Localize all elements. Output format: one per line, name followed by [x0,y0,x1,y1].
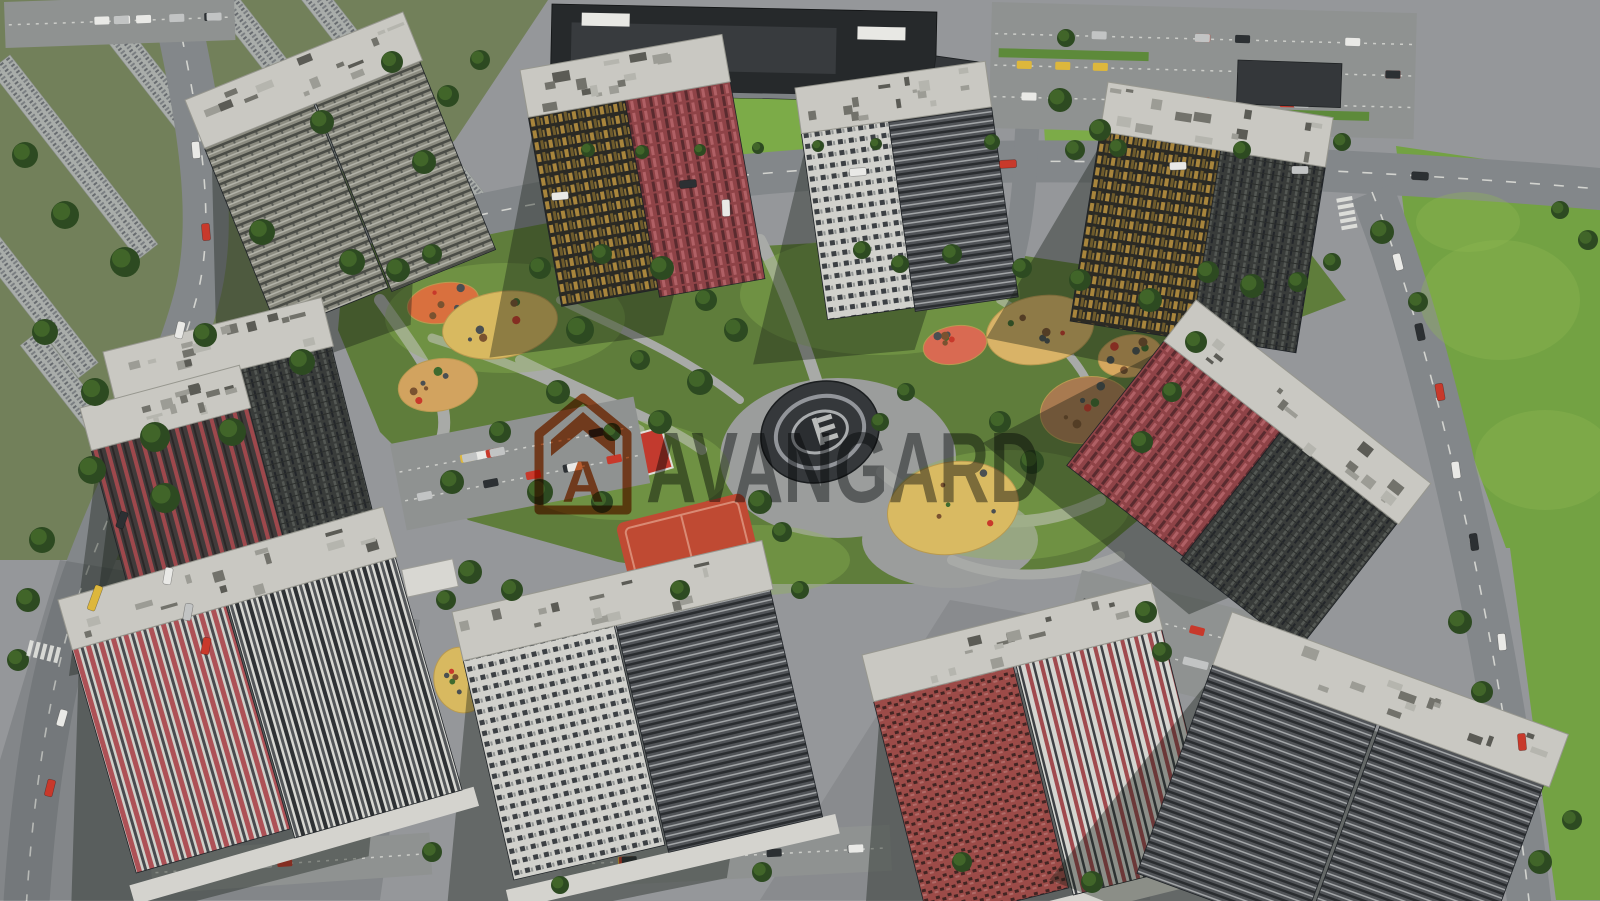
lawn-patch [1420,240,1580,360]
car [1169,162,1186,171]
roof-clutter [1151,99,1163,111]
tree-highlight [195,325,210,340]
tree-highlight [1110,140,1121,151]
tree-highlight [142,424,161,443]
tree-highlight [1552,202,1563,213]
tree-highlight [871,139,878,146]
tree-highlight [251,221,267,237]
tree-highlight [1013,259,1025,271]
tree-highlight [312,112,327,127]
tree-highlight [773,523,785,535]
car [849,167,867,176]
tree-highlight [388,260,403,275]
parked-car [136,15,151,24]
watermark-text: AVANGARD [646,412,1040,524]
tree-highlight [671,581,683,593]
car [1497,633,1507,651]
tree-highlight [442,472,457,487]
parked-car [1385,70,1400,78]
tree-highlight [14,144,30,160]
tree-highlight [582,144,591,153]
tree-highlight [1530,852,1545,867]
car [679,179,697,188]
parked-car [206,12,221,21]
tree-highlight [696,290,710,304]
tree-highlight [152,485,171,504]
car [1292,166,1309,174]
tree-highlight [382,52,396,66]
tree-highlight [1140,290,1155,305]
tree-highlight [1198,262,1212,276]
car [191,141,200,159]
tree-highlight [898,384,909,395]
tree-highlight [53,203,70,220]
tree-highlight [1153,643,1165,655]
parked-car [1093,63,1108,71]
lawn-patch [1416,192,1520,252]
tree-highlight [636,146,645,155]
tree-highlight [341,251,357,267]
tree-highlight [652,258,667,273]
roof-clutter [930,100,937,107]
tree-highlight [1050,90,1065,105]
roof-clutter [912,89,917,93]
roof-clutter [617,79,626,87]
tree-highlight [530,258,544,272]
tree-highlight [1409,293,1421,305]
tree-highlight [593,245,605,257]
roof-clutter [1231,133,1239,140]
roof-clutter [1305,122,1312,131]
tree-highlight [31,529,47,545]
tree-highlight [18,590,33,605]
tree-highlight [854,242,865,253]
tree-highlight [112,249,131,268]
tree-highlight [985,135,995,145]
tree-highlight [1334,134,1345,145]
roof-clutter [1244,109,1252,119]
tree-highlight [291,351,307,367]
parked-car [114,16,129,25]
parked-car [1195,34,1210,42]
tree-highlight [568,318,585,335]
tree-highlight [1163,383,1175,395]
tree-highlight [1186,332,1200,346]
tree-highlight [689,371,705,387]
tree-highlight [695,145,702,152]
car [999,160,1016,169]
tree-highlight [1234,142,1245,153]
service-shed [1236,60,1341,108]
tree-highlight [753,143,760,150]
tree-highlight [1289,273,1301,285]
tree-highlight [943,245,955,257]
tree-highlight [438,86,452,100]
tree-highlight [34,321,50,337]
tree-highlight [460,562,475,577]
tree-highlight [892,256,903,267]
tree-highlight [1563,811,1575,823]
parked-car [1017,61,1032,69]
car [551,191,569,200]
tree-highlight [953,853,965,865]
tree-highlight [437,591,449,603]
tree-highlight [80,458,97,475]
parked-car [1092,31,1107,39]
mall-sign [857,26,905,40]
tree-highlight [423,245,435,257]
parked-car [1021,92,1036,100]
aerial-render-stage: A AVANGARD [0,0,1600,901]
parked-car [1055,62,1070,70]
tree-highlight [792,582,803,593]
aerial-render: A AVANGARD [0,0,1600,901]
tree-highlight [1070,270,1084,284]
tree-highlight [813,141,820,148]
tree-highlight [1136,602,1150,616]
tree-highlight [726,320,741,335]
parked-car [1235,35,1250,43]
tree-highlight [1132,432,1146,446]
tree-highlight [471,51,483,63]
tree-highlight [552,877,563,888]
tree-highlight [8,650,22,664]
tree-highlight [1324,254,1335,265]
tree-highlight [1066,141,1078,153]
roof-clutter [852,97,860,108]
tree-highlight [631,351,643,363]
tree-highlight [83,380,100,397]
parking-old-town [4,0,235,48]
tree-highlight [1472,682,1486,696]
parked-car [1345,38,1360,46]
roof-clutter [576,78,588,91]
roof-clutter [808,110,817,120]
car [201,223,210,241]
tree-highlight [490,422,504,436]
parked-car [169,14,184,23]
tree-highlight [220,420,237,437]
tree-highlight [1450,612,1465,627]
tree-highlight [753,863,765,875]
tree-highlight [1579,231,1591,243]
tree-highlight [1372,222,1387,237]
parked-car [94,16,109,25]
mall-sign [582,13,630,27]
parked-car [848,844,863,853]
tree-highlight [1242,276,1257,291]
car [722,199,731,216]
car [1411,172,1428,181]
tree-highlight [502,580,516,594]
roof-clutter [843,105,853,115]
roof-clutter [918,80,930,92]
logo-letter: A [562,450,604,515]
tree-highlight [423,843,435,855]
tree-highlight [1058,30,1069,41]
tree-highlight [1082,872,1096,886]
tree-highlight [1090,120,1104,134]
tree-highlight [414,152,429,167]
tree-highlight [548,382,563,397]
car [1517,733,1526,751]
roof-clutter [609,85,620,94]
